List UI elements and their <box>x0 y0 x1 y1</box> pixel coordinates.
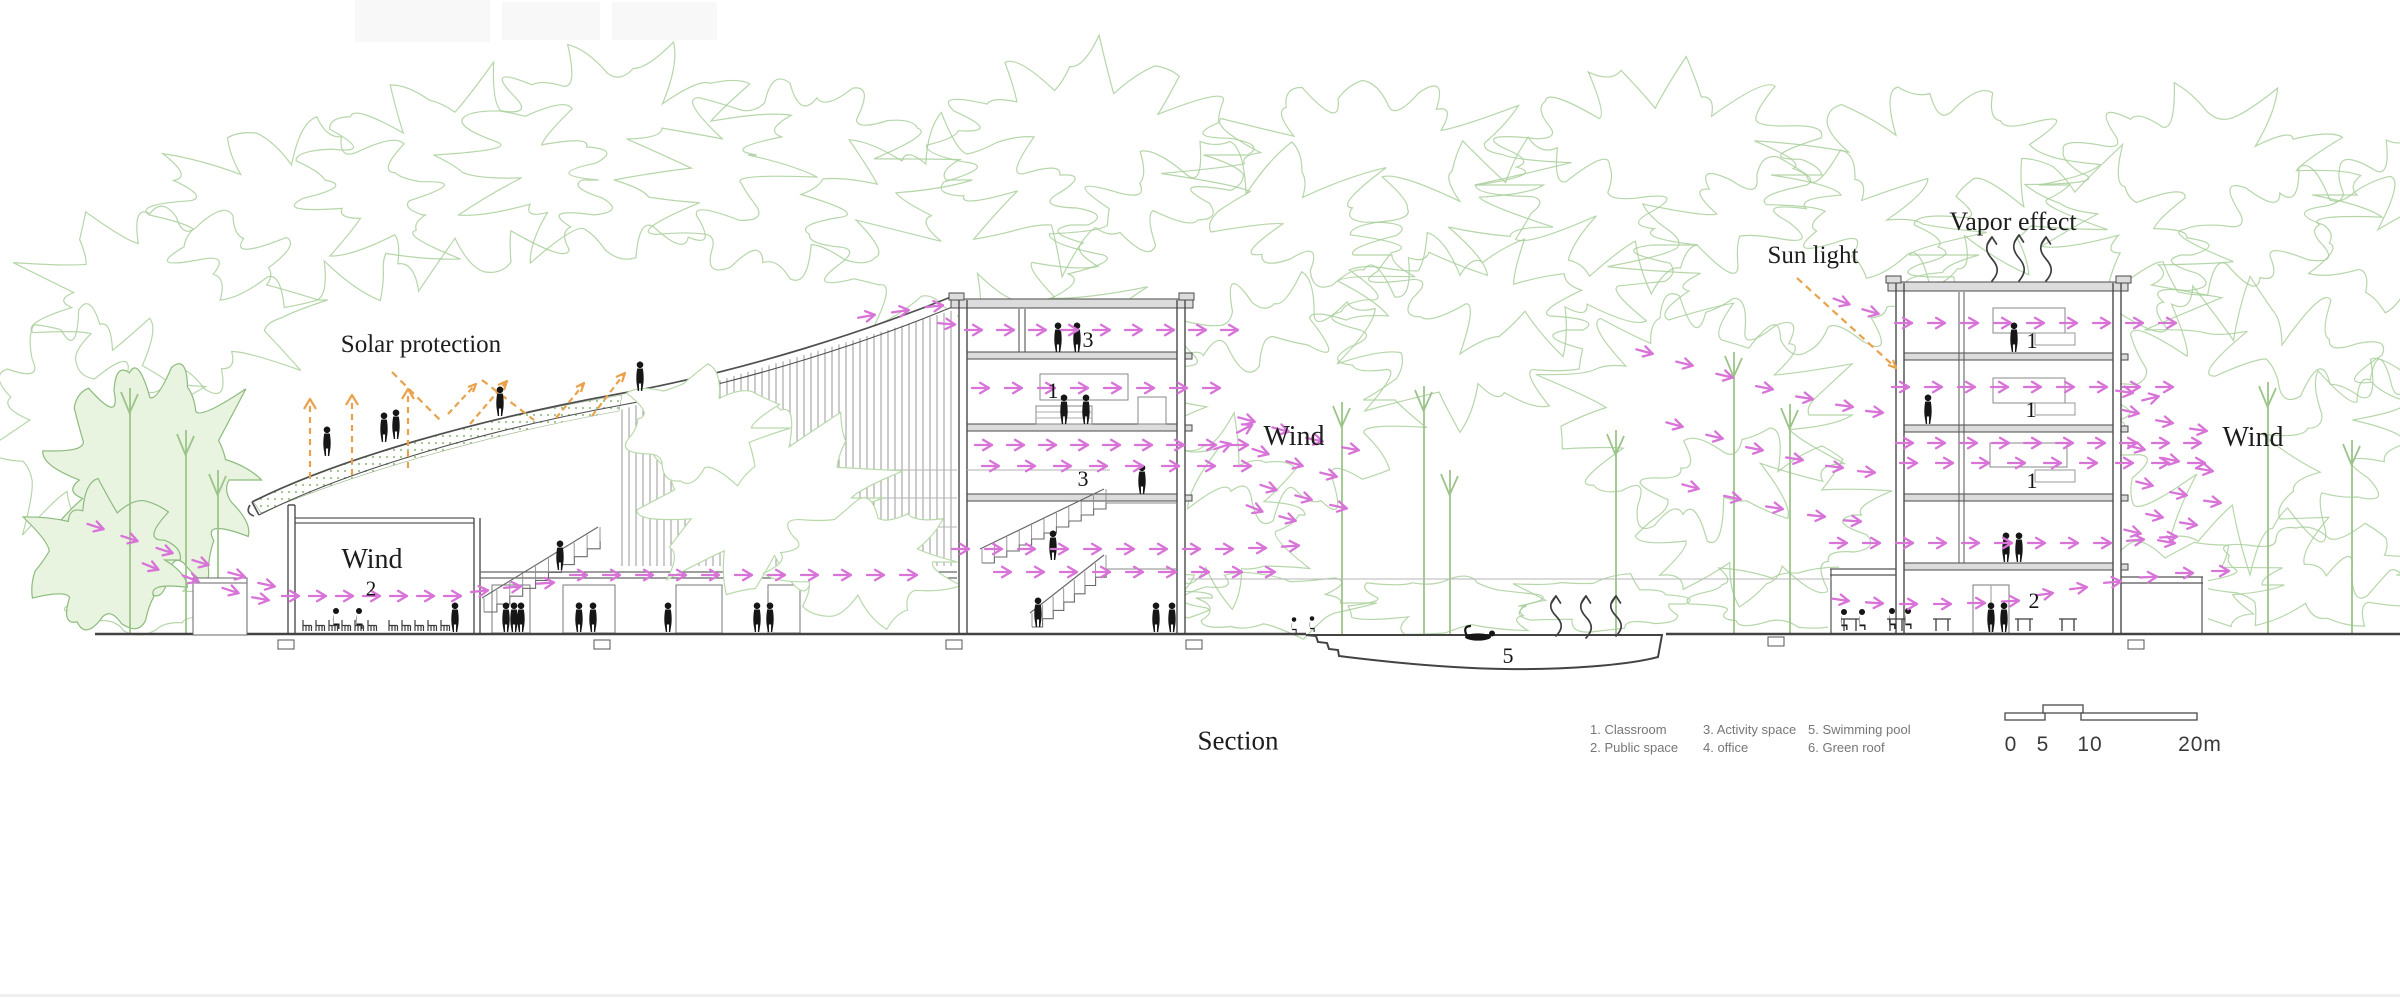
middle-tower-section <box>949 293 1194 633</box>
legend-item-activity-space: 3. Activity space <box>1703 722 1796 737</box>
room-number-public-space-left: 2 <box>366 577 377 602</box>
drawing-title: Section <box>1198 726 1279 757</box>
room-number-classroom-r3: 1 <box>2026 397 2037 423</box>
scale-tick-20m: 20m <box>2178 733 2222 757</box>
scale-tick-5: 5 <box>2037 733 2050 757</box>
label-wind-left: Wind <box>341 544 402 576</box>
scale-tick-10: 10 <box>2077 733 2102 757</box>
scale-bar <box>2005 705 2197 720</box>
scale-tick-0: 0 <box>2005 733 2018 757</box>
legend-item-office: 4. office <box>1703 740 1748 755</box>
legend-item-classroom: 1. Classroom <box>1590 722 1667 737</box>
architectural-section-diagram: Solar protection Wind Wind Wind Sun ligh… <box>0 0 2400 998</box>
room-number-classroom-r4: 1 <box>2027 328 2038 354</box>
room-number-activity-top: 3 <box>1083 327 1094 353</box>
legend-item-green-roof: 6. Green roof <box>1808 740 1885 755</box>
section-drawing <box>0 0 2400 998</box>
label-vapor-effect: Vapor effect <box>1949 207 2076 237</box>
room-number-classroom-mid: 1 <box>1048 378 1059 404</box>
room-number-classroom-r2: 1 <box>2027 468 2038 494</box>
room-number-activity-lower: 3 <box>1078 466 1089 492</box>
legend-item-swimming-pool: 5. Swimming pool <box>1808 722 1911 737</box>
label-wind-middle: Wind <box>1263 421 1324 453</box>
label-wind-right: Wind <box>2222 422 2283 454</box>
legend-item-public-space: 2. Public space <box>1590 740 1678 755</box>
room-number-swimming-pool: 5 <box>1503 643 1514 669</box>
label-sun-light: Sun light <box>1768 242 1859 270</box>
label-solar-protection: Solar protection <box>341 331 501 359</box>
room-number-public-space-right: 2 <box>2029 588 2040 614</box>
